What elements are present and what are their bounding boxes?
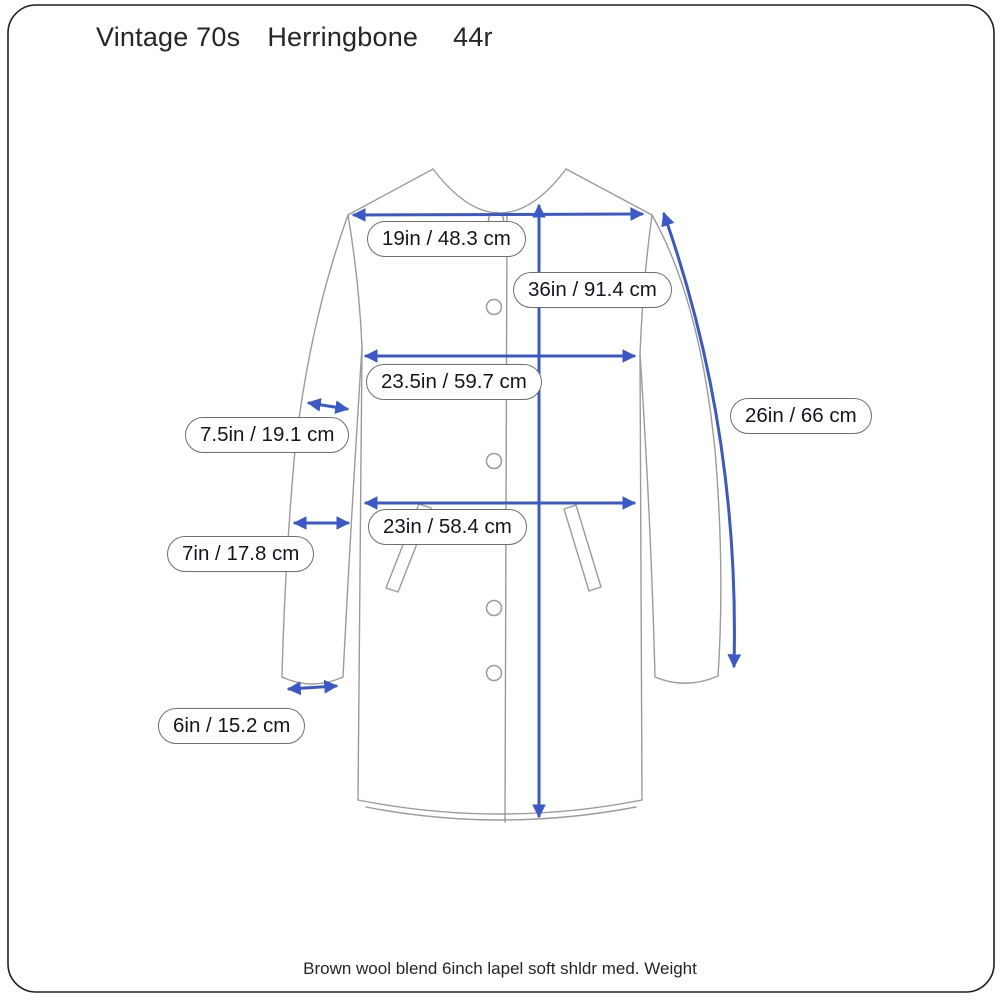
item-description: Brown wool blend 6inch lapel soft shldr …: [0, 959, 1000, 979]
measurement-label-sleeve: 26in / 66 cm: [730, 398, 872, 434]
cuff-width-arrow: [289, 686, 336, 689]
title-era: Vintage 70s: [96, 22, 240, 52]
button-3: [487, 454, 502, 469]
right-pocket-welt: [564, 505, 601, 591]
page-title: Vintage 70sHerringbone44r: [96, 22, 493, 53]
page-frame: [8, 5, 994, 992]
title-fabric: Herringbone: [267, 22, 418, 52]
measurement-label-shoulder: 19in / 48.3 cm: [367, 221, 526, 257]
title-size: 44r: [453, 22, 493, 52]
coat-diagram-svg: [0, 0, 1000, 1000]
measurement-label-length: 36in / 91.4 cm: [513, 272, 672, 308]
measurement-label-forearm: 7in / 17.8 cm: [167, 536, 314, 572]
coat-buttons: [487, 213, 504, 681]
measurement-diagram-page: Vintage 70sHerringbone44r 19in / 48.3 cm…: [0, 0, 1000, 1000]
left-cuff-curve: [282, 677, 343, 684]
measurement-label-cuff: 6in / 15.2 cm: [158, 708, 305, 744]
coat-body-outline: [348, 169, 652, 822]
sleeve-length-arrow: [664, 214, 734, 666]
measurement-label-chest: 23.5in / 59.7 cm: [366, 364, 542, 400]
button-5: [487, 666, 502, 681]
button-2: [487, 300, 502, 315]
button-4: [487, 601, 502, 616]
measurement-label-waist: 23in / 58.4 cm: [368, 509, 527, 545]
bicep-width-arrow: [309, 403, 347, 409]
measurement-label-bicep: 7.5in / 19.1 cm: [185, 417, 349, 453]
shoulder-width-arrow: [354, 214, 642, 215]
right-cuff-curve: [655, 676, 718, 683]
